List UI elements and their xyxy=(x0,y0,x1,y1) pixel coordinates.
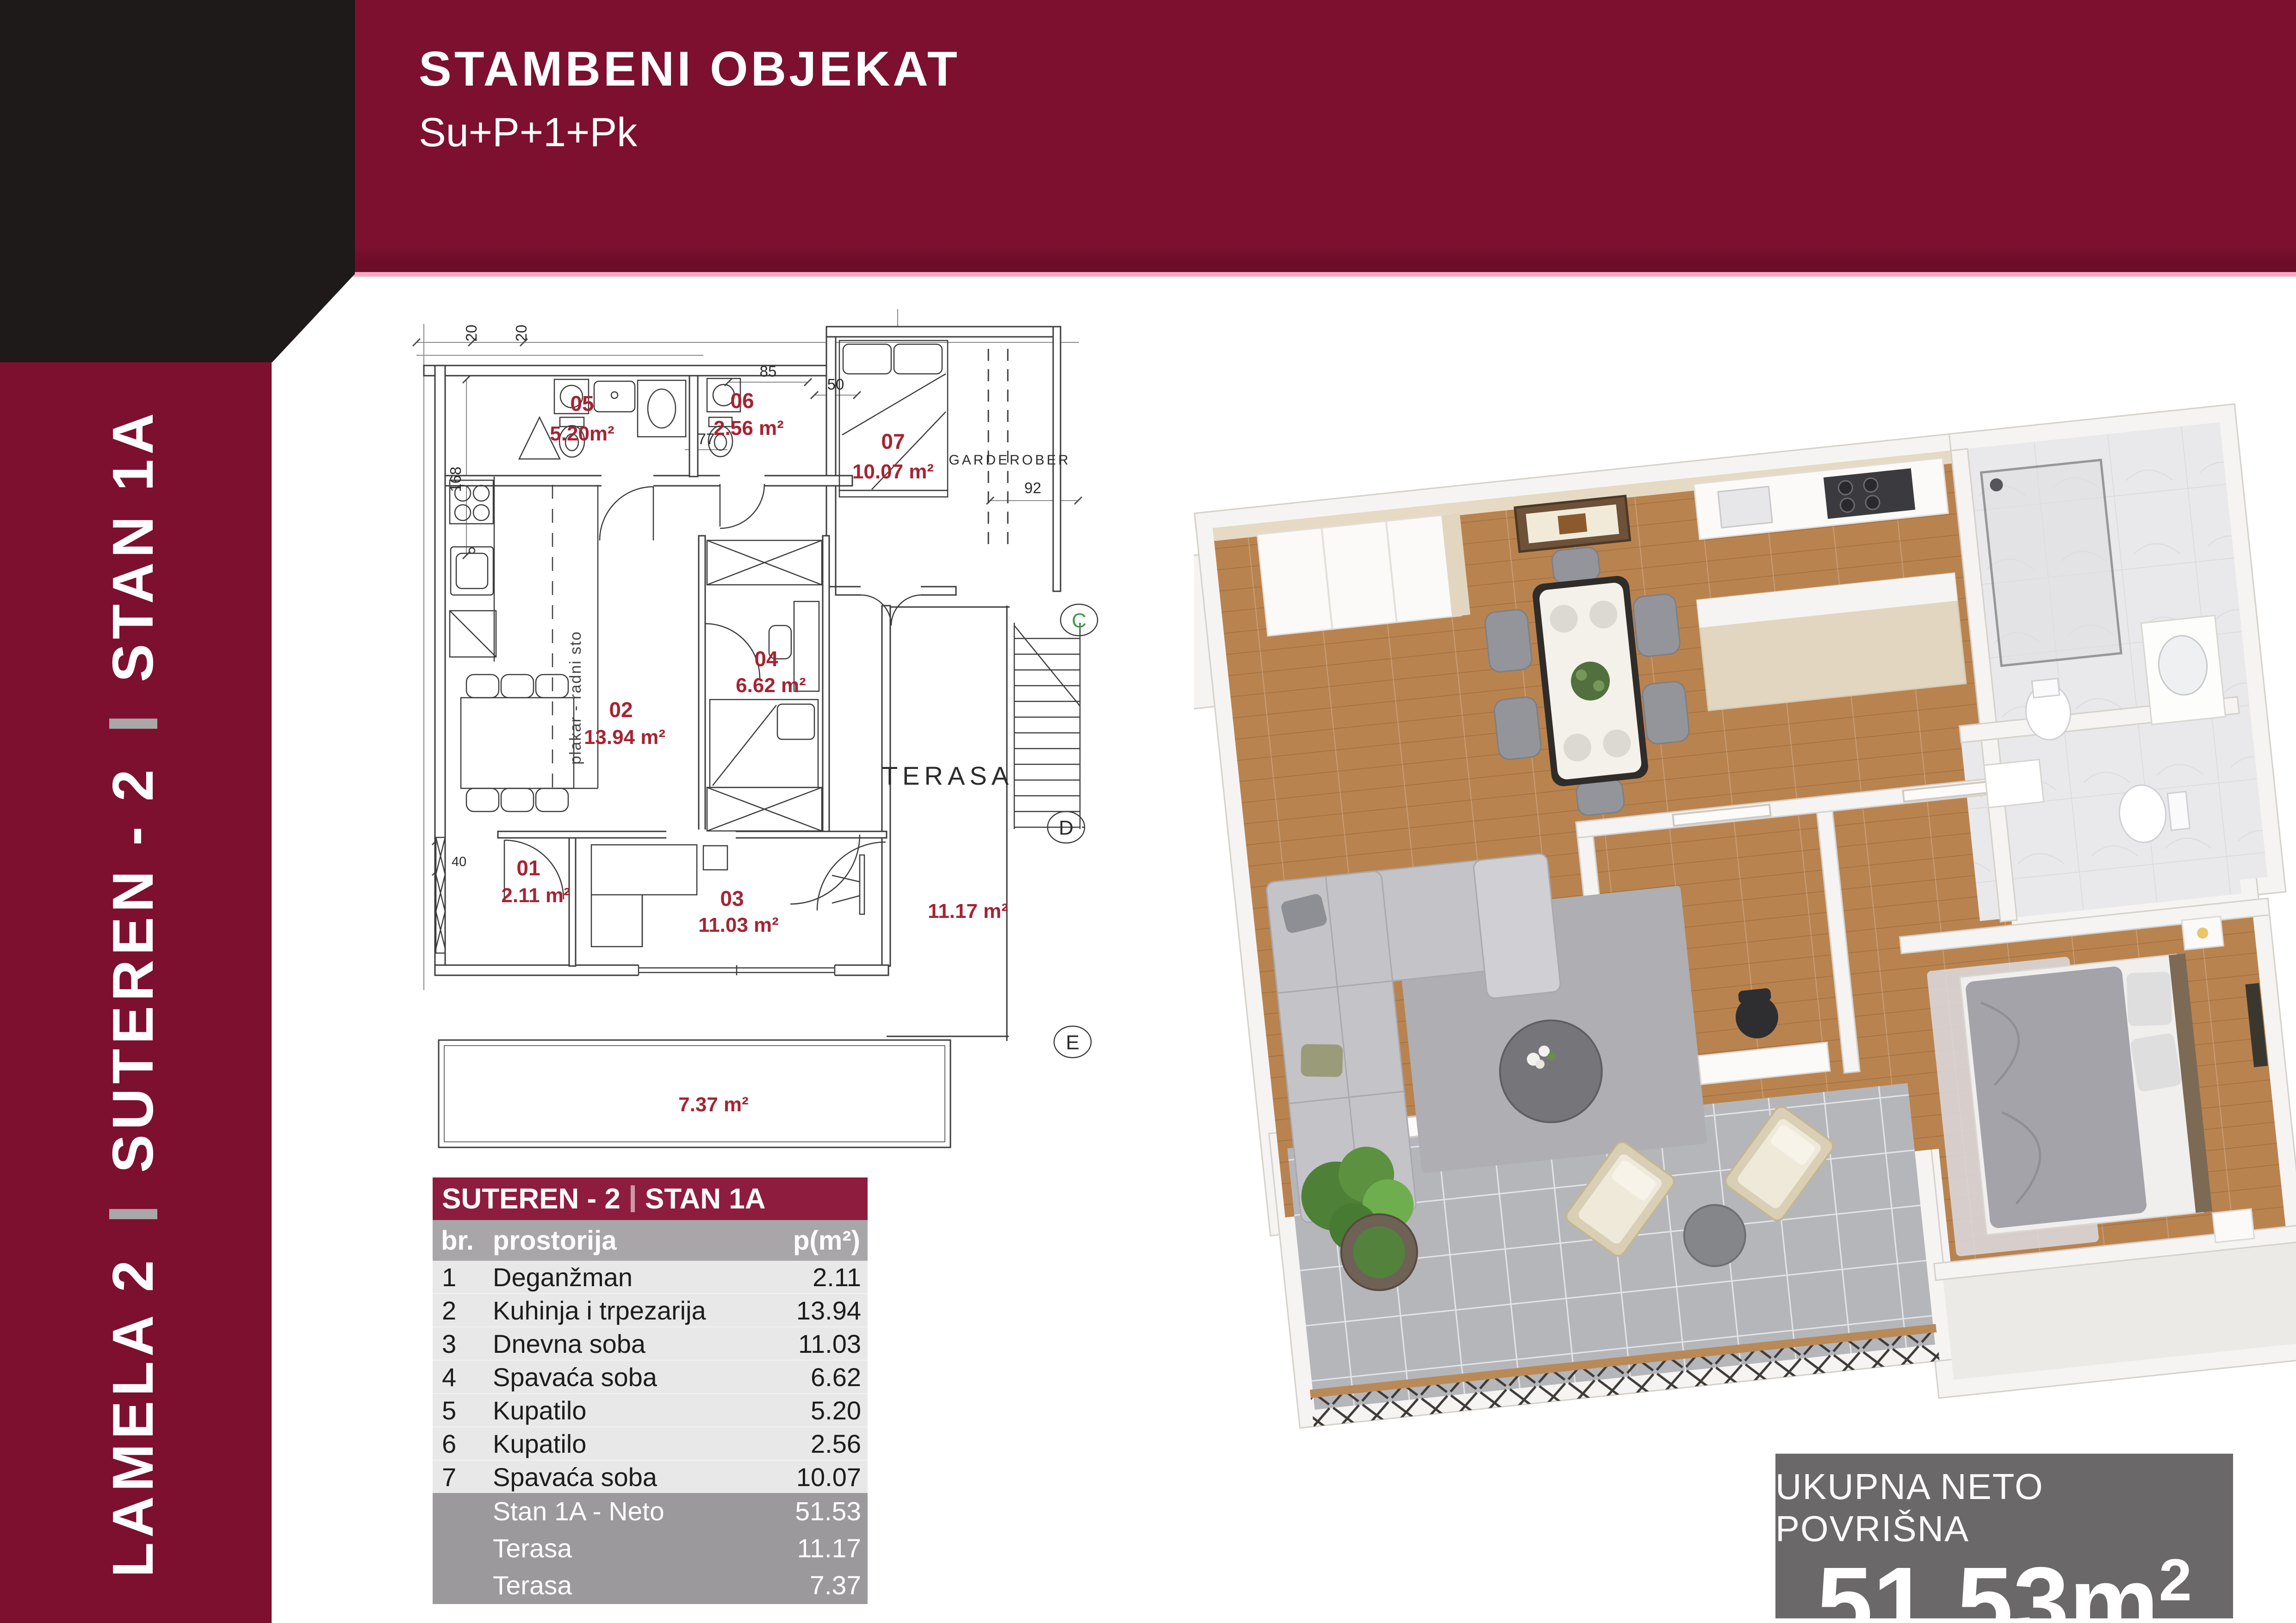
kitchen-fixtures xyxy=(450,477,496,662)
row-val: 11.03 xyxy=(747,1329,868,1359)
footer-val: 51.53 xyxy=(747,1496,868,1527)
garderober-dashed xyxy=(988,349,1008,546)
room01-number: 01 xyxy=(516,856,540,880)
page-title: STAMBENI OBJEKAT xyxy=(419,44,960,93)
row-num: 7 xyxy=(433,1462,493,1492)
table-row: 4 Spavaća soba 6.62 xyxy=(433,1360,868,1393)
dim-20b: 20 xyxy=(513,325,530,342)
dim-92: 92 xyxy=(1024,479,1042,496)
marker-d: D xyxy=(1059,817,1074,839)
room01-area: 2.11 m² xyxy=(501,884,570,907)
row-num: 3 xyxy=(433,1329,493,1359)
footer-val: 7.37 xyxy=(747,1570,868,1601)
total-area-label: UKUPNA NETO POVRIŠNA xyxy=(1775,1466,2233,1550)
row-name: Kupatilo xyxy=(493,1395,747,1425)
table-row: 2 Kuhinja i trpezarija 13.94 xyxy=(433,1293,868,1326)
room05-number: 05 xyxy=(570,391,594,415)
row-name: Spavaća soba xyxy=(493,1462,747,1492)
sidebar-segment-suteren: SUTEREN - 2 xyxy=(101,765,165,1173)
row-num: 1 xyxy=(433,1262,493,1292)
dim-77: 77 xyxy=(698,430,715,447)
dim-40: 40 xyxy=(452,855,466,869)
row-num: 2 xyxy=(433,1295,493,1326)
footer-name: Stan 1A - Neto xyxy=(433,1496,747,1527)
room05-area: 5.20m² xyxy=(550,422,614,445)
page: STAMBENI OBJEKAT Su+P+1+Pk LAMELA 2 SUTE… xyxy=(0,0,2296,1623)
total-area-number: 51.53m xyxy=(1817,1547,2159,1623)
total-area-value: 51.53m2 xyxy=(1817,1551,2192,1623)
terasa-label: TERASA xyxy=(882,761,1013,790)
room02-number: 02 xyxy=(609,698,633,722)
room07-area: 10.07 m² xyxy=(852,460,934,483)
garderober-label: GARDEROBER xyxy=(949,452,1070,468)
table-footer: Stan 1A - Neto 51.53 Terasa 11.17 Terasa… xyxy=(433,1493,868,1604)
table-footer-row: Stan 1A - Neto 51.53 xyxy=(433,1493,868,1530)
row-num: 4 xyxy=(433,1362,493,1392)
room02-area: 13.94 m² xyxy=(584,726,665,749)
dim-168: 168 xyxy=(447,466,464,492)
room03-number: 03 xyxy=(720,886,744,911)
dim-85: 85 xyxy=(760,363,777,380)
terrace-bottom-area: 7.37 m² xyxy=(678,1093,749,1116)
total-area-sup: 2 xyxy=(2159,1547,2192,1613)
sidebar-separator xyxy=(109,719,157,729)
col-prostorija: prostorija xyxy=(493,1225,766,1256)
row-name: Dnevna soba xyxy=(493,1329,747,1359)
room03-area: 11.03 m² xyxy=(698,914,779,936)
table-title-right: STAN 1A xyxy=(645,1183,766,1215)
floorplan-3d xyxy=(1194,389,2296,1453)
col-pm2: p(m²) xyxy=(766,1225,868,1256)
corner-logo-block xyxy=(0,0,355,362)
closet-label: plakar - radni sto xyxy=(567,631,584,764)
dim-20a: 20 xyxy=(463,325,480,342)
room07-number: 07 xyxy=(881,429,905,453)
room04-area: 6.62 m² xyxy=(736,674,806,697)
table-row: 6 Kupatilo 2.56 xyxy=(433,1426,868,1460)
room-table: SUTEREN - 2 STAN 1A br. prostorija p(m²)… xyxy=(433,1177,868,1599)
row-num: 6 xyxy=(433,1429,493,1459)
stairs xyxy=(1014,623,1080,829)
row-name: Spavaća soba xyxy=(493,1362,747,1392)
row-val: 13.94 xyxy=(747,1295,868,1326)
table-footer-row: Terasa 11.17 xyxy=(433,1530,868,1567)
marker-c: C xyxy=(1072,609,1086,632)
row-val: 2.11 xyxy=(747,1262,868,1292)
apartment-3d xyxy=(1194,404,2296,1453)
row-num: 5 xyxy=(433,1395,493,1425)
col-br: br. xyxy=(433,1225,493,1256)
row-name: Kupatilo xyxy=(493,1429,747,1459)
table-row: 3 Dnevna soba 11.03 xyxy=(433,1326,868,1360)
dim-50: 50 xyxy=(827,376,844,393)
page-subtitle: Su+P+1+Pk xyxy=(419,112,637,153)
footer-name: Terasa xyxy=(433,1533,747,1564)
row-val: 6.62 xyxy=(747,1362,868,1392)
sidebar-vertical-text: LAMELA 2 SUTEREN - 2 STAN 1A xyxy=(74,382,192,1604)
table-row: 1 Deganžman 2.11 xyxy=(433,1261,868,1293)
row-name: Deganžman xyxy=(493,1262,747,1292)
total-area-box: UKUPNA NETO POVRIŠNA 51.53m2 xyxy=(1775,1454,2233,1618)
footer-val: 11.17 xyxy=(747,1533,868,1564)
sidebar-segment-stan: STAN 1A xyxy=(101,409,165,682)
floorplan-2d: 05 5.20m² 06 2.56 m² 07 10.07 m² 04 6.62… xyxy=(407,296,1175,1175)
room06-number: 06 xyxy=(730,389,754,413)
room06-area: 2.56 m² xyxy=(714,417,784,440)
sidebar-separator xyxy=(109,1209,157,1219)
room04-number: 04 xyxy=(754,647,778,671)
dining-set xyxy=(461,675,574,811)
row-val: 10.07 xyxy=(747,1462,868,1492)
table-footer-row: Terasa 7.37 xyxy=(433,1567,868,1604)
sidebar-segment-lamela: LAMELA 2 xyxy=(101,1256,165,1577)
table-title-separator xyxy=(631,1185,635,1212)
row-val: 5.20 xyxy=(747,1395,868,1425)
table-row: 7 Spavaća soba 10.07 xyxy=(433,1460,868,1493)
row-name: Kuhinja i trpezarija xyxy=(493,1295,747,1326)
table-title: SUTEREN - 2 STAN 1A xyxy=(433,1177,868,1220)
marker-e: E xyxy=(1066,1031,1079,1054)
terrace-right-area: 11.17 m² xyxy=(928,900,1008,923)
footer-name: Terasa xyxy=(433,1570,747,1601)
door-openings xyxy=(602,474,921,977)
table-body: 1 Deganžman 2.11 2 Kuhinja i trpezarija … xyxy=(433,1261,868,1493)
table-row: 5 Kupatilo 5.20 xyxy=(433,1393,868,1426)
table-header-row: br. prostorija p(m²) xyxy=(433,1220,868,1261)
row-val: 2.56 xyxy=(747,1429,868,1459)
table-title-left: SUTEREN - 2 xyxy=(442,1183,621,1215)
